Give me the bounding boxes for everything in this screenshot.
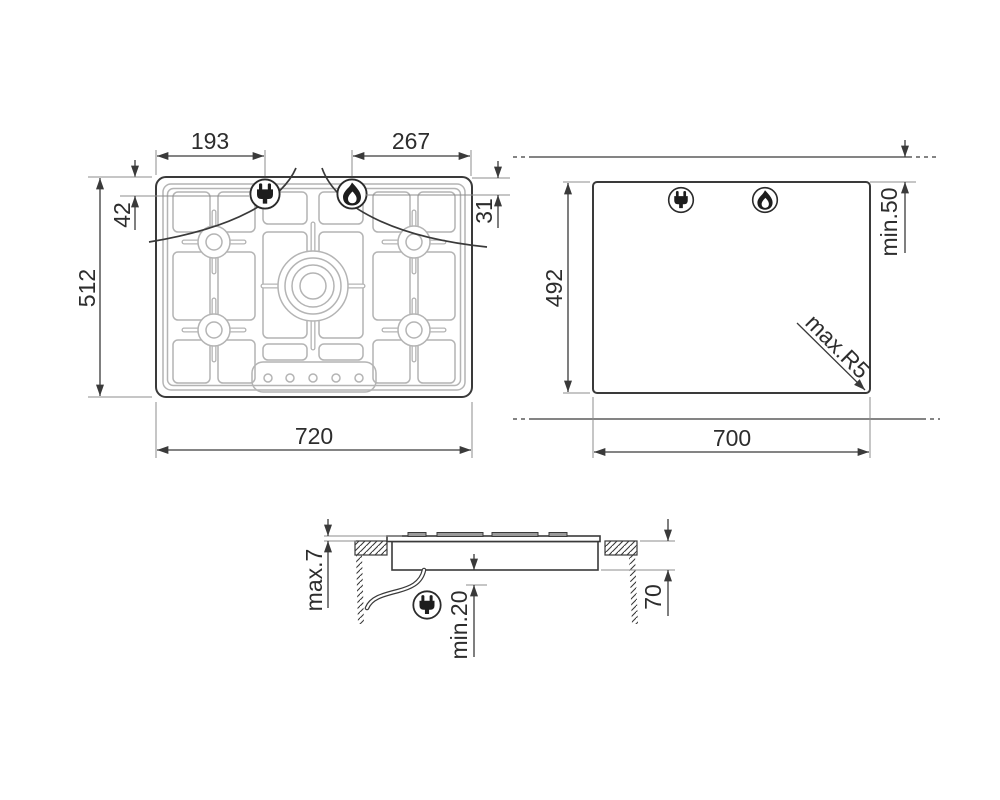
cabinet-wall-left (356, 555, 364, 624)
control-knob (309, 374, 317, 382)
control-knob (264, 374, 272, 382)
dim-label-max7: max.7 (301, 549, 327, 612)
dim-label-min50: min.50 (876, 187, 902, 256)
hob-top-view: 193 267 42 31 512 (74, 128, 510, 458)
cutout-outline (593, 182, 870, 393)
dim-electrical-offset: 193 (156, 128, 265, 176)
hob-tub-section (392, 542, 598, 571)
dim-hob-width: 720 (156, 402, 472, 458)
plug-icon (413, 591, 440, 618)
control-knob (355, 374, 363, 382)
dim-label-70: 70 (640, 584, 666, 610)
side-section-view: max.7 min.20 70 (301, 519, 675, 660)
dim-label-193: 193 (191, 128, 229, 154)
worktop-cutout-view: min.50 492 700 max.R5 (513, 140, 940, 458)
dim-cutout-width: 700 (593, 397, 870, 458)
dim-worktop-recess: 70 (601, 519, 675, 616)
dim-rim-height: max.7 (301, 519, 402, 611)
flame-icon (753, 188, 778, 213)
dim-label-31: 31 (471, 198, 497, 224)
dim-label-720: 720 (295, 423, 333, 449)
flame-icon (337, 179, 366, 208)
dim-label-512: 512 (74, 269, 100, 307)
worktop-section-right (605, 541, 637, 555)
control-knob (332, 374, 340, 382)
dim-label-700: 700 (713, 425, 751, 451)
dim-label-492: 492 (541, 269, 567, 307)
control-knob (286, 374, 294, 382)
dim-label-267: 267 (392, 128, 430, 154)
dim-gas-offset: 267 (352, 128, 471, 176)
cabinet-wall-right (629, 555, 638, 624)
dim-cutout-depth: 492 (541, 182, 590, 393)
installation-drawing-page: 193 267 42 31 512 (0, 0, 1000, 800)
plug-icon (250, 179, 279, 208)
dim-label-42: 42 (109, 202, 135, 228)
hob-installation-diagram: 193 267 42 31 512 (0, 0, 1000, 800)
plug-icon (669, 188, 694, 213)
dim-label-min20: min.20 (446, 590, 472, 659)
worktop-section-left (355, 541, 387, 555)
